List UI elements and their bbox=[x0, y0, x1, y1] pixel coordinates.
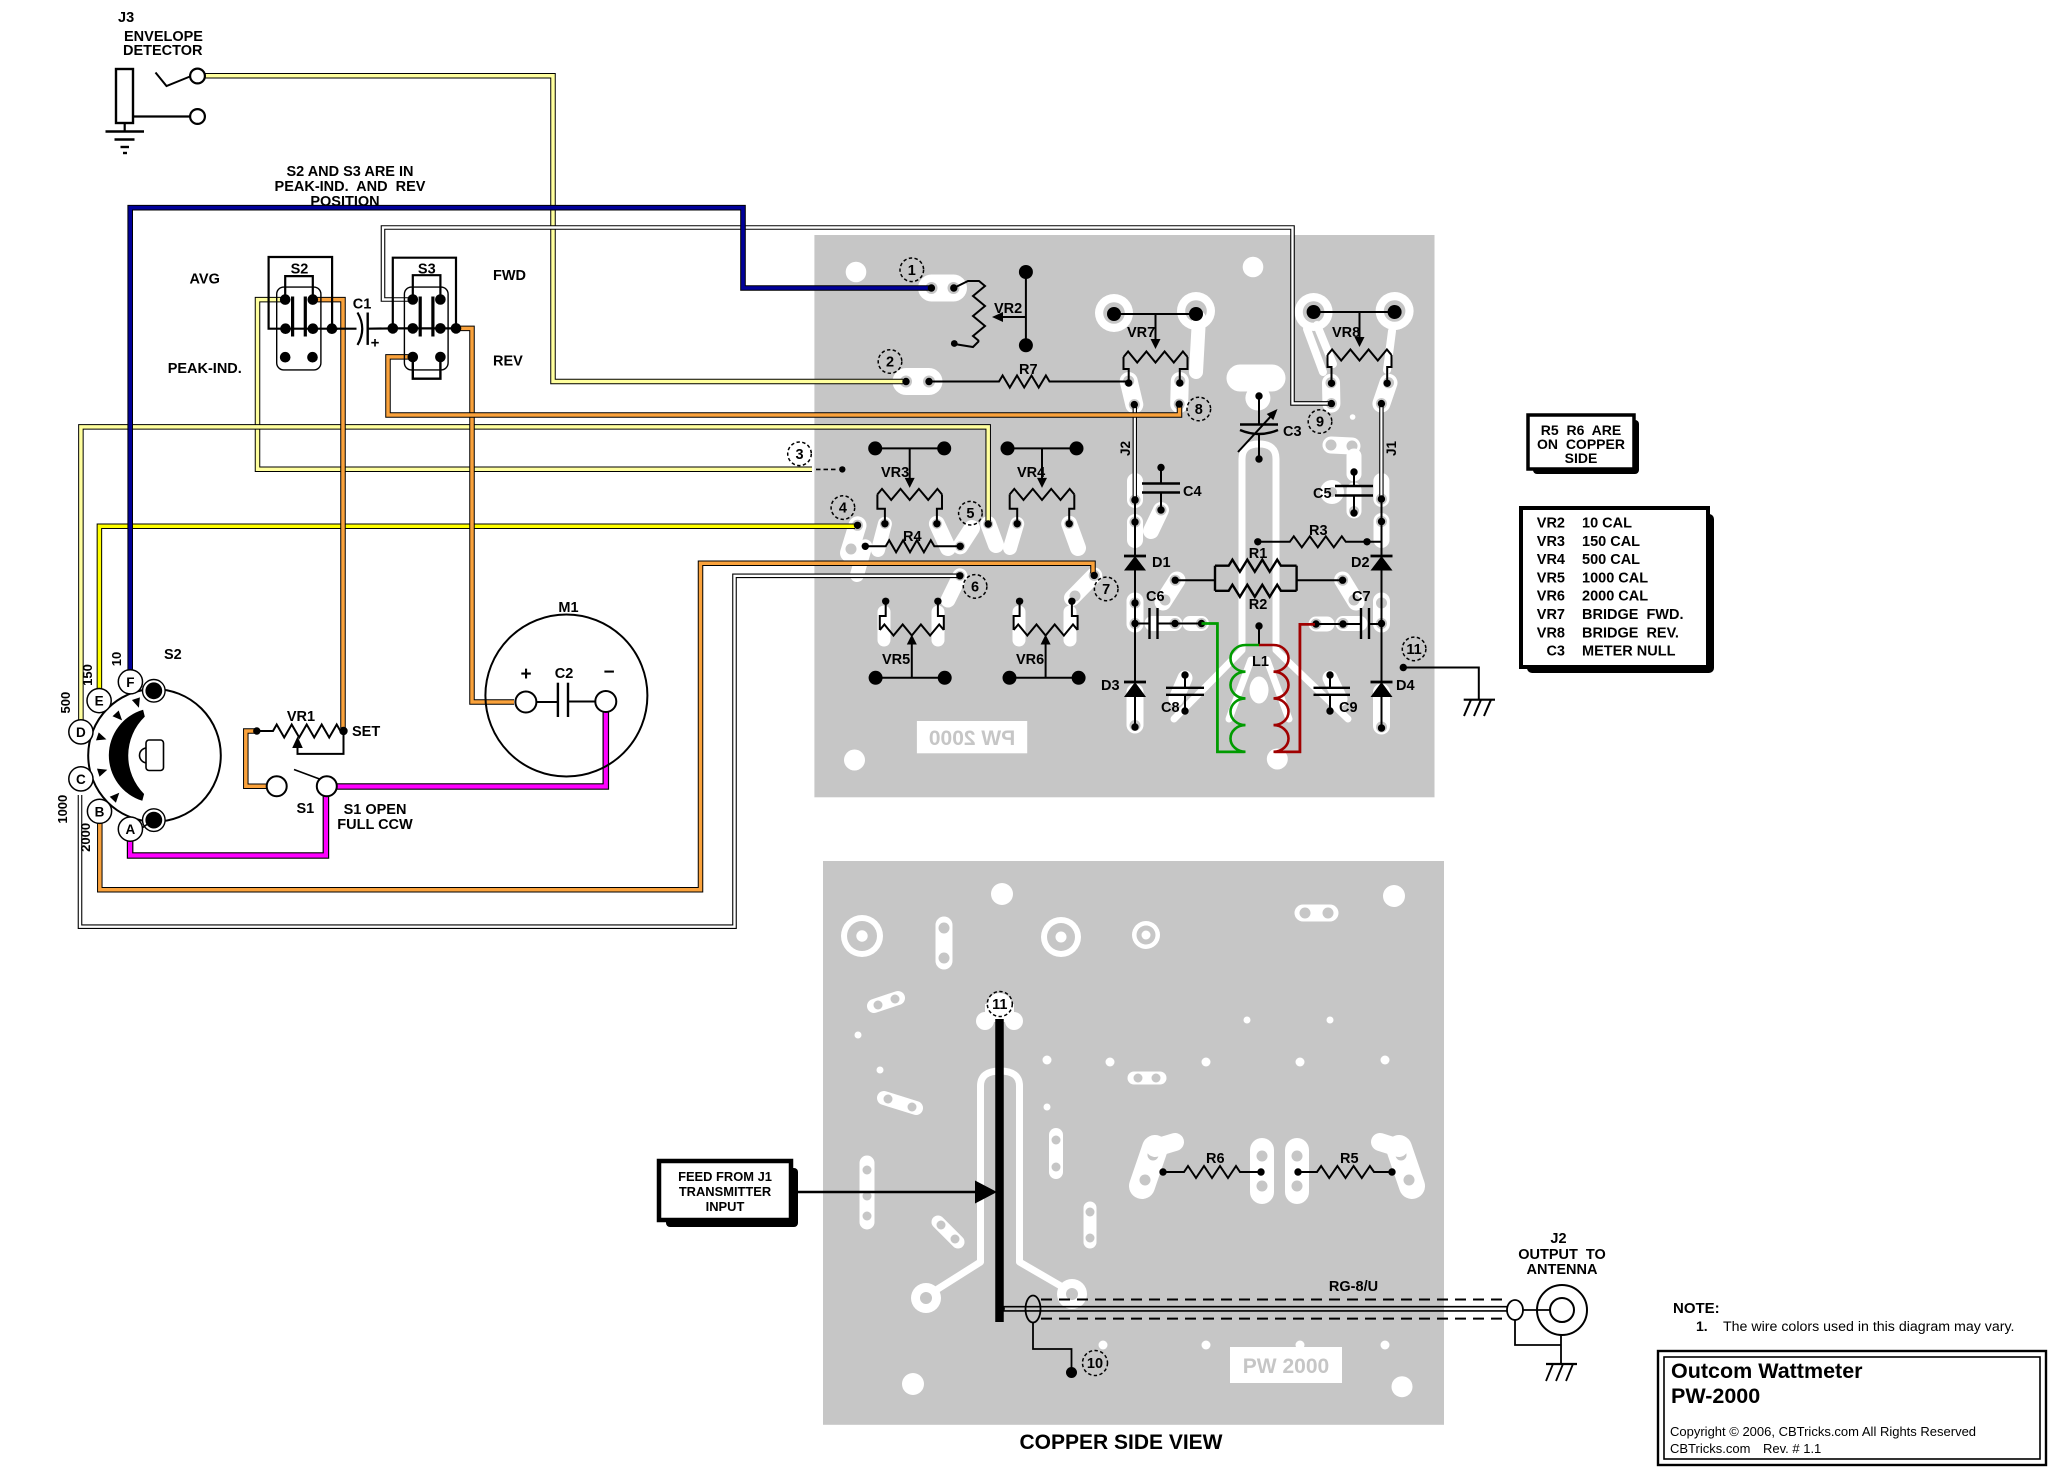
svg-text:2000: 2000 bbox=[78, 823, 93, 852]
svg-text:2000 CAL: 2000 CAL bbox=[1582, 589, 1648, 605]
svg-text:J2: J2 bbox=[1550, 1231, 1566, 1247]
svg-text:+: + bbox=[520, 664, 531, 685]
svg-text:B: B bbox=[95, 804, 105, 819]
svg-text:C3: C3 bbox=[1546, 644, 1565, 660]
svg-text:500 CAL: 500 CAL bbox=[1582, 552, 1640, 568]
svg-text:1000 CAL: 1000 CAL bbox=[1582, 570, 1648, 586]
svg-text:VR8: VR8 bbox=[1537, 625, 1565, 641]
svg-text:C1: C1 bbox=[353, 297, 372, 313]
svg-text:−: − bbox=[603, 662, 614, 683]
svg-text:1.: 1. bbox=[1696, 1318, 1708, 1334]
svg-text:BRIDGE REV.: BRIDGE REV. bbox=[1582, 625, 1679, 641]
svg-text:C8: C8 bbox=[1161, 700, 1180, 716]
svg-text:C: C bbox=[76, 772, 86, 787]
svg-text:R5: R5 bbox=[1340, 1151, 1359, 1167]
svg-text:150: 150 bbox=[80, 664, 95, 686]
svg-text:4: 4 bbox=[839, 501, 847, 517]
svg-text:TRANSMITTER: TRANSMITTER bbox=[679, 1184, 772, 1199]
svg-text:AVG: AVG bbox=[190, 272, 220, 288]
svg-text:Outcom Wattmeter: Outcom Wattmeter bbox=[1671, 1359, 1863, 1383]
svg-text:PEAK-IND. AND REV: PEAK-IND. AND REV bbox=[275, 179, 426, 195]
svg-text:FEED FROM J1: FEED FROM J1 bbox=[678, 1169, 772, 1184]
svg-text:PW 2000: PW 2000 bbox=[929, 727, 1015, 750]
svg-text:J3: J3 bbox=[118, 10, 134, 26]
svg-text:COPPER SIDE VIEW: COPPER SIDE VIEW bbox=[1019, 1431, 1222, 1454]
svg-text:D3: D3 bbox=[1101, 678, 1120, 694]
svg-text:RG-8/U: RG-8/U bbox=[1329, 1279, 1378, 1295]
svg-text:10: 10 bbox=[109, 652, 124, 666]
svg-text:VR3: VR3 bbox=[881, 465, 909, 481]
svg-text:VR1: VR1 bbox=[287, 709, 315, 725]
svg-text:ANTENNA: ANTENNA bbox=[1527, 1262, 1598, 1278]
svg-text:R4: R4 bbox=[903, 529, 922, 545]
svg-text:1: 1 bbox=[908, 263, 916, 279]
svg-text:VR5: VR5 bbox=[882, 652, 910, 668]
svg-text:VR4: VR4 bbox=[1017, 465, 1045, 481]
svg-text:R1: R1 bbox=[1249, 546, 1268, 562]
svg-text:The wire colors used in this d: The wire colors used in this diagram may… bbox=[1723, 1319, 2014, 1335]
svg-text:A: A bbox=[126, 822, 136, 837]
svg-text:BRIDGE FWD.: BRIDGE FWD. bbox=[1582, 607, 1684, 623]
svg-text:VR2: VR2 bbox=[1537, 516, 1565, 532]
svg-text:CBTricks.com: CBTricks.com bbox=[1670, 1441, 1750, 1456]
svg-text:D4: D4 bbox=[1396, 678, 1415, 694]
svg-text:500: 500 bbox=[58, 692, 73, 714]
svg-text:VR5: VR5 bbox=[1537, 570, 1565, 586]
svg-text:11: 11 bbox=[992, 997, 1007, 1013]
svg-text:150 CAL: 150 CAL bbox=[1582, 534, 1640, 550]
svg-text:D2: D2 bbox=[1351, 555, 1370, 571]
svg-text:C7: C7 bbox=[1352, 589, 1371, 605]
svg-text:Rev. # 1.1: Rev. # 1.1 bbox=[1763, 1441, 1821, 1456]
svg-text:R2: R2 bbox=[1249, 597, 1268, 613]
svg-text:OUTPUT TO: OUTPUT TO bbox=[1518, 1247, 1606, 1263]
svg-text:E: E bbox=[95, 694, 104, 709]
svg-text:C5: C5 bbox=[1313, 486, 1332, 502]
svg-text:11: 11 bbox=[1406, 642, 1421, 658]
svg-text:S1: S1 bbox=[297, 801, 315, 817]
svg-text:PW-2000: PW-2000 bbox=[1671, 1384, 1760, 1408]
svg-text:C9: C9 bbox=[1339, 700, 1358, 716]
svg-text:5: 5 bbox=[966, 506, 974, 522]
svg-text:C6: C6 bbox=[1146, 589, 1165, 605]
svg-text:VR6: VR6 bbox=[1016, 652, 1044, 668]
svg-text:VR7: VR7 bbox=[1537, 607, 1565, 623]
svg-text:L1: L1 bbox=[1252, 654, 1269, 670]
svg-text:REV: REV bbox=[493, 354, 523, 370]
svg-text:1000: 1000 bbox=[55, 795, 70, 824]
svg-text:VR6: VR6 bbox=[1537, 589, 1565, 605]
svg-text:C2: C2 bbox=[555, 666, 574, 682]
svg-text:C4: C4 bbox=[1183, 484, 1202, 500]
svg-text:9: 9 bbox=[1316, 415, 1324, 431]
svg-text:VR4: VR4 bbox=[1537, 552, 1565, 568]
svg-text:R3: R3 bbox=[1309, 523, 1328, 539]
svg-text:2: 2 bbox=[886, 355, 894, 371]
svg-text:DETECTOR: DETECTOR bbox=[123, 43, 203, 59]
svg-text:VR2: VR2 bbox=[994, 301, 1022, 317]
svg-text:PEAK-IND.: PEAK-IND. bbox=[168, 361, 242, 377]
svg-text:C3: C3 bbox=[1283, 424, 1302, 440]
svg-text:FULL CCW: FULL CCW bbox=[337, 817, 413, 833]
svg-text:J1: J1 bbox=[1384, 441, 1399, 457]
svg-text:S2: S2 bbox=[164, 647, 182, 663]
svg-text:8: 8 bbox=[1195, 402, 1203, 418]
svg-text:SIDE: SIDE bbox=[1565, 450, 1598, 466]
svg-text:R6: R6 bbox=[1206, 1151, 1225, 1167]
svg-text:PW 2000: PW 2000 bbox=[1243, 1355, 1329, 1378]
svg-text:SET: SET bbox=[352, 724, 380, 740]
svg-text:FWD: FWD bbox=[493, 268, 526, 284]
svg-text:F: F bbox=[126, 675, 134, 690]
svg-text:R7: R7 bbox=[1019, 362, 1038, 378]
svg-text:S2 AND S3 ARE IN: S2 AND S3 ARE IN bbox=[286, 164, 413, 180]
svg-text:D1: D1 bbox=[1152, 555, 1171, 571]
svg-text:J2: J2 bbox=[1118, 441, 1133, 456]
svg-text:VR8: VR8 bbox=[1332, 325, 1360, 341]
svg-text:D: D bbox=[76, 725, 86, 740]
svg-text:10 CAL: 10 CAL bbox=[1582, 516, 1632, 532]
svg-text:+: + bbox=[371, 335, 380, 352]
svg-text:METER NULL: METER NULL bbox=[1582, 644, 1676, 660]
svg-text:NOTE:: NOTE: bbox=[1673, 1300, 1720, 1317]
svg-text:6: 6 bbox=[971, 579, 979, 595]
svg-text:Copyright © 2006, CBTricks.com: Copyright © 2006, CBTricks.com All Right… bbox=[1670, 1424, 1976, 1439]
svg-text:INPUT: INPUT bbox=[706, 1199, 745, 1214]
svg-text:S1 OPEN: S1 OPEN bbox=[344, 802, 407, 818]
svg-text:10: 10 bbox=[1087, 1356, 1103, 1372]
svg-text:VR7: VR7 bbox=[1127, 325, 1155, 341]
svg-text:VR3: VR3 bbox=[1537, 534, 1565, 550]
svg-text:POSITION: POSITION bbox=[310, 194, 379, 210]
svg-text:3: 3 bbox=[795, 447, 803, 463]
svg-text:7: 7 bbox=[1102, 582, 1110, 598]
